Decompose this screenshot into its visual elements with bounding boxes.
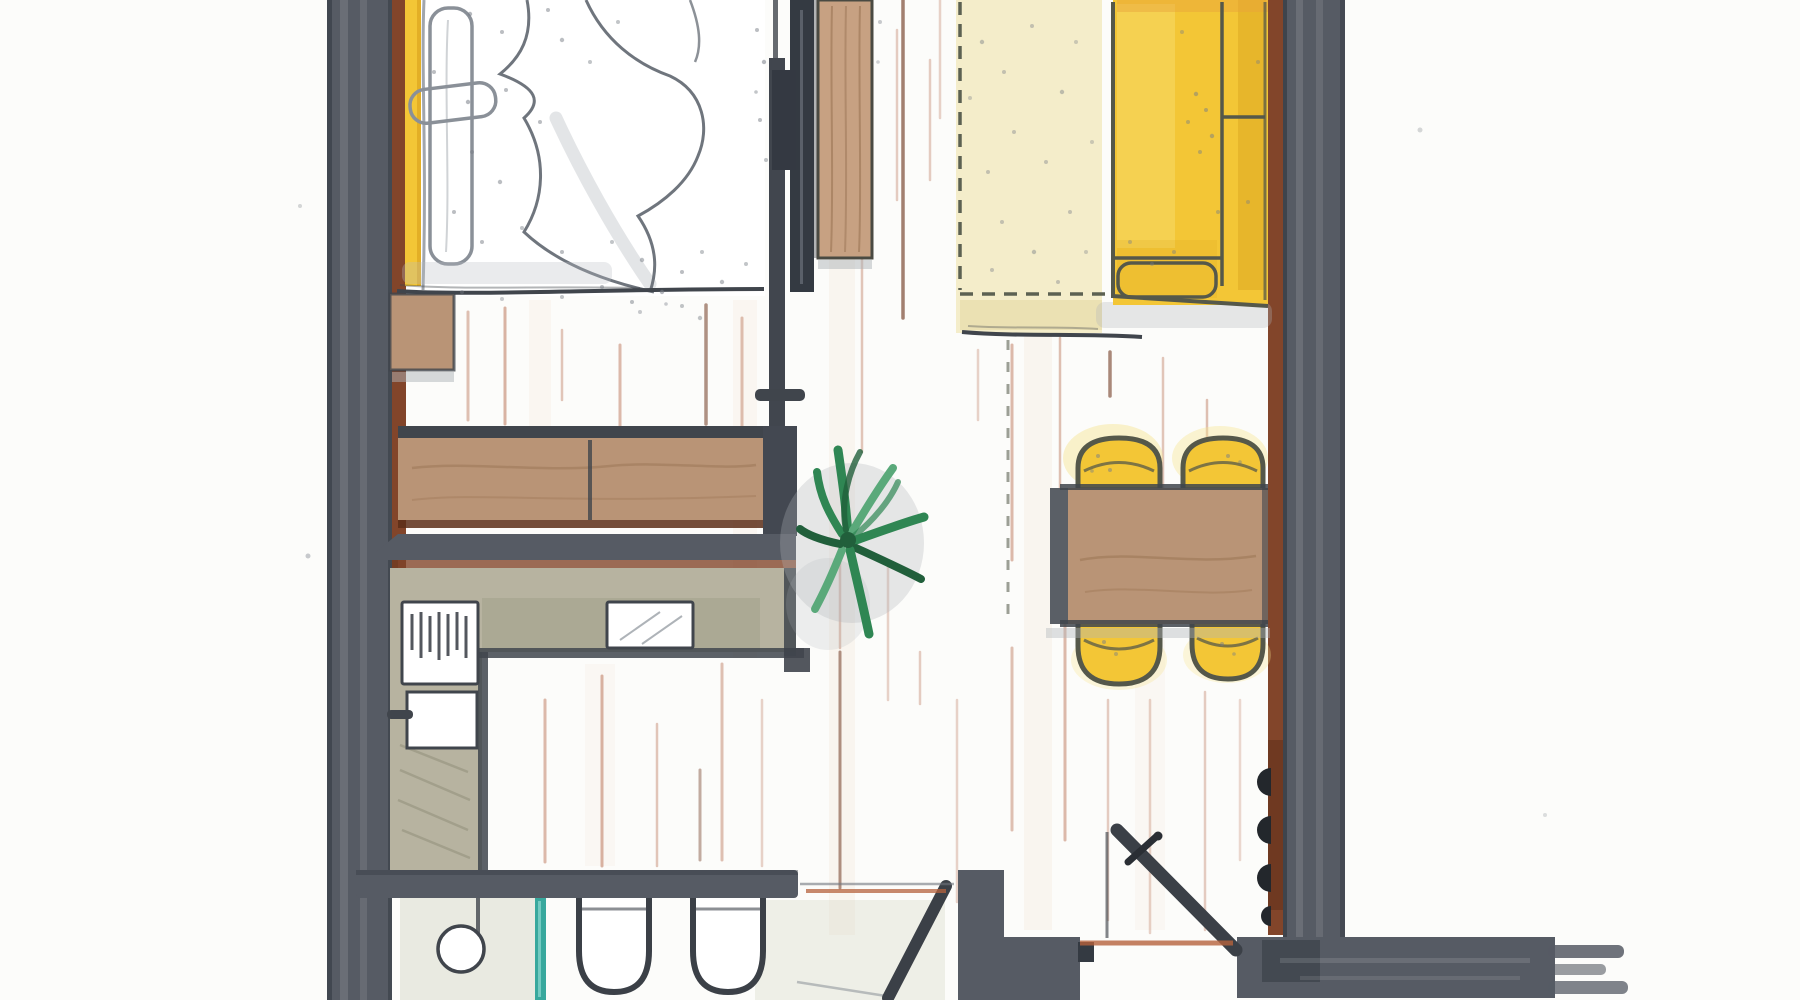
speckle-dot xyxy=(1084,250,1088,254)
speckle-dot xyxy=(755,28,759,32)
speckle-dot xyxy=(1204,108,1208,112)
speckle-dot xyxy=(660,290,664,294)
speckle-dot xyxy=(876,60,880,64)
wall-hook xyxy=(1257,816,1271,844)
bottom-wall-brush-streak xyxy=(1548,981,1628,994)
speckle-dot xyxy=(1056,280,1060,284)
right-wall-texture-stripe xyxy=(1296,0,1303,937)
bolster-crease xyxy=(446,20,448,252)
speckle-dot xyxy=(1210,134,1214,138)
mattress-left-outline xyxy=(423,0,424,290)
speckle-dot xyxy=(560,38,564,42)
bed xyxy=(390,0,765,382)
right-wall-outer-edge xyxy=(1340,0,1345,937)
floor-wash-band xyxy=(529,300,551,428)
speckle-dot xyxy=(720,280,724,284)
speckle-dot xyxy=(1246,200,1250,204)
bottom-wall-brush-streak xyxy=(1548,964,1606,975)
speckle-dot xyxy=(1030,24,1034,28)
speckle-dot xyxy=(1220,642,1224,646)
entry-wall-stub-horizontal xyxy=(1004,937,1080,1000)
table-top-edge xyxy=(1060,484,1268,490)
entry-door-leaf xyxy=(1117,830,1236,950)
right-wall xyxy=(1283,0,1345,937)
speckle-dot xyxy=(466,100,470,104)
wall-hook xyxy=(1257,864,1271,892)
speckle-dot xyxy=(638,310,642,314)
nightstand-shadow xyxy=(392,372,454,382)
floor-plan-drawing xyxy=(0,0,1800,1000)
table-bottom-edge xyxy=(1060,620,1268,627)
speckle-dot xyxy=(1186,120,1190,124)
speckle-dot xyxy=(1002,70,1006,74)
sofa-light-wash xyxy=(1117,4,1175,248)
counter-inner-edge-v xyxy=(478,652,488,870)
sofa-armrest-wash xyxy=(1117,240,1217,298)
wardrobe-shadow xyxy=(818,260,872,269)
speckle-dot xyxy=(744,262,748,266)
right-wall-inner-edge xyxy=(1283,0,1287,937)
speckle-dot xyxy=(520,226,524,230)
speckle-dot xyxy=(1150,262,1154,266)
left-wall xyxy=(327,0,392,1000)
floor-wash-band xyxy=(585,664,615,866)
speckle-dot xyxy=(630,300,634,304)
speckle-dot xyxy=(968,96,972,100)
counter-trim-line xyxy=(398,560,796,568)
speckle-dot xyxy=(1198,150,1202,154)
table-shadow xyxy=(1046,628,1270,638)
table-left-shadow-edge xyxy=(1050,488,1068,624)
speckle-dot xyxy=(1000,220,1004,224)
speckle-dot xyxy=(762,60,766,64)
speckle-dot xyxy=(1060,90,1064,94)
toilet xyxy=(579,898,649,992)
speckle-dot xyxy=(546,8,550,12)
rug-fill xyxy=(956,0,1102,333)
left-wall-texture-stripe xyxy=(360,0,367,1000)
speckle-dot xyxy=(500,30,504,34)
speckle-dot xyxy=(1090,469,1094,473)
speckle-dot xyxy=(1418,128,1423,133)
speckle-dot xyxy=(664,302,668,306)
speckle-dot xyxy=(560,295,564,299)
toilet xyxy=(693,898,763,992)
sideboard-divider xyxy=(588,440,592,520)
oven xyxy=(407,692,477,748)
speckle-dot xyxy=(306,554,311,559)
speckle-dot xyxy=(1044,160,1048,164)
speckle-dot xyxy=(1172,250,1176,254)
speckle-dot xyxy=(700,250,704,254)
speckle-dot xyxy=(460,290,464,294)
speckle-dot xyxy=(1226,454,1230,458)
counter-corner-stub xyxy=(784,648,810,672)
speckle-dot xyxy=(452,210,456,214)
sofa-top-tint xyxy=(1117,0,1268,12)
speckle-dot xyxy=(600,285,604,289)
right-wall-texture-stripe xyxy=(1316,0,1323,937)
speckle-dot xyxy=(1216,210,1220,214)
sliding-door-overlap-slab xyxy=(772,70,796,170)
speckle-dot xyxy=(498,180,502,184)
dining-table xyxy=(1068,488,1268,624)
speckle-dot xyxy=(640,258,644,262)
bottom-wall-texture xyxy=(1300,976,1520,980)
wardrobe-grain xyxy=(831,6,832,252)
speckle-dot xyxy=(470,150,474,154)
speckle-dot xyxy=(480,240,484,244)
speckle-dot xyxy=(680,304,684,308)
speckle-dot xyxy=(538,120,542,124)
wall-hook xyxy=(1261,906,1271,926)
rug-edge-wash xyxy=(960,300,1102,330)
speckle-dot xyxy=(1128,240,1132,244)
kitchen-sink xyxy=(607,602,693,648)
sideboard-bottom-trim xyxy=(398,520,763,528)
speckle-dot xyxy=(1194,92,1198,96)
bathroom-wall-edge xyxy=(356,870,798,875)
partition-highlight xyxy=(800,10,803,284)
glass-highlight xyxy=(538,901,541,997)
speckle-dot xyxy=(878,20,882,24)
blanket-strip-edge xyxy=(417,0,421,286)
speckle-dot xyxy=(504,88,508,92)
speckle-dot xyxy=(758,118,762,122)
speckle-dot xyxy=(1096,454,1100,458)
speckle-dot xyxy=(990,268,994,272)
speckle-dot xyxy=(468,12,472,16)
speckle-dot xyxy=(500,297,504,301)
speckle-dot xyxy=(616,20,620,24)
speckle-dot xyxy=(1012,130,1016,134)
speckle-dot xyxy=(298,204,302,208)
left-wall-outer-edge xyxy=(327,0,332,1000)
wardrobe-grain xyxy=(845,6,846,252)
oven-handle xyxy=(387,710,413,719)
nightstand xyxy=(390,294,454,370)
plant-center xyxy=(840,532,856,548)
potted-plant xyxy=(780,450,924,650)
speckle-dot xyxy=(1102,640,1106,644)
speckle-dot xyxy=(680,270,684,274)
floor-plan-canvas xyxy=(0,0,1800,1000)
speckle-dot xyxy=(1032,250,1036,254)
wardrobe-grain xyxy=(859,6,860,252)
table-right-edge xyxy=(1262,488,1268,624)
speckle-dot xyxy=(1543,813,1547,817)
speckle-dot xyxy=(986,170,990,174)
bottom-wall-brush-streak xyxy=(1548,945,1624,958)
left-wall-texture-stripe xyxy=(340,0,348,1000)
speckle-dot xyxy=(610,240,614,244)
speckle-dot xyxy=(698,316,702,320)
counter-back-panel xyxy=(376,534,796,560)
kitchen-sideboard xyxy=(398,438,763,520)
bed-foot-shading xyxy=(402,262,612,284)
dining-set xyxy=(1046,424,1271,690)
wall-hook xyxy=(1257,768,1271,796)
speckle-dot xyxy=(1232,652,1236,656)
speckle-dot xyxy=(1180,30,1184,34)
wardrobe xyxy=(814,0,872,269)
speckle-dot xyxy=(980,40,984,44)
entry-door-handle-knob xyxy=(1154,832,1163,841)
speckle-dot xyxy=(1068,210,1072,214)
speckle-dot xyxy=(754,90,758,94)
speckle-dot xyxy=(1090,140,1094,144)
speckle-dot xyxy=(764,158,768,162)
sofa-backrest-wash xyxy=(1238,0,1266,290)
speckle-dot xyxy=(1238,460,1242,464)
bottom-wall-texture xyxy=(1280,958,1530,963)
sideboard-top-edge xyxy=(398,426,763,438)
bathroom xyxy=(400,884,954,1000)
sofa xyxy=(1096,0,1272,328)
speckle-dot xyxy=(1256,60,1260,64)
speckle-dot xyxy=(588,60,592,64)
speckle-dot xyxy=(1114,652,1118,656)
washbasin xyxy=(438,926,484,972)
speckle-dot xyxy=(560,250,564,254)
door-track xyxy=(773,0,778,60)
speckle-dot xyxy=(432,70,436,74)
speckle-dot xyxy=(1108,468,1112,472)
door-handle-bar xyxy=(755,389,805,401)
speckle-dot xyxy=(1074,40,1078,44)
entry-wall-stub-vertical xyxy=(958,870,1004,1000)
